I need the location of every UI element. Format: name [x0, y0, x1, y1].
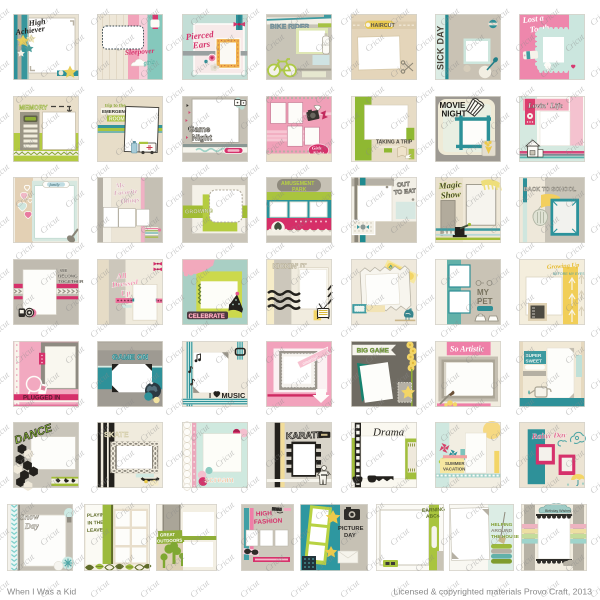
- svg-text:Cricut: Cricut: [563, 0, 587, 2]
- svg-text:I: I: [209, 391, 211, 400]
- svg-text:Lovin' Life: Lovin' Life: [527, 101, 563, 110]
- svg-text:ROOM: ROOM: [109, 117, 125, 123]
- svg-text:Cricut: Cricut: [0, 265, 12, 287]
- svg-text:Cricut: Cricut: [0, 161, 12, 183]
- svg-text:Cricut: Cricut: [288, 577, 312, 599]
- svg-text:Cricut: Cricut: [238, 577, 262, 599]
- svg-text:Cricut: Cricut: [513, 0, 537, 2]
- svg-text:Cricut: Cricut: [588, 317, 600, 339]
- svg-text:Cricut: Cricut: [213, 499, 237, 521]
- svg-text:Cricut: Cricut: [588, 473, 600, 495]
- svg-text:Cricut: Cricut: [138, 577, 162, 599]
- svg-text:Cricut: Cricut: [588, 265, 600, 287]
- svg-text:Cricut: Cricut: [0, 109, 12, 131]
- svg-text:PARK: PARK: [292, 187, 307, 193]
- svg-text:Cricut: Cricut: [313, 0, 337, 2]
- svg-text:CELEBRATE: CELEBRATE: [189, 314, 225, 320]
- svg-text:Cricut: Cricut: [63, 499, 87, 521]
- svg-text:Cricut: Cricut: [413, 83, 437, 105]
- svg-text:Day: Day: [24, 521, 40, 531]
- svg-text:Cricut: Cricut: [0, 213, 12, 235]
- svg-text:TOGETHER: TOGETHER: [58, 279, 84, 284]
- svg-text:Cricut: Cricut: [0, 421, 12, 443]
- svg-text:BELONG: BELONG: [58, 274, 78, 279]
- svg-text:trip to the: trip to the: [105, 103, 126, 108]
- svg-text:Ears: Ears: [191, 39, 211, 51]
- svg-text:Cricut: Cricut: [338, 577, 362, 599]
- svg-text:Licensed & copyrighted materia: Licensed & copyrighted materials Provo C…: [394, 587, 593, 597]
- svg-text:Cricut: Cricut: [363, 0, 387, 2]
- svg-text:Cricut: Cricut: [0, 473, 12, 495]
- svg-text:Cricut: Cricut: [113, 0, 137, 2]
- svg-text:Cricut: Cricut: [0, 57, 12, 79]
- svg-text:When I Was a Kid: When I Was a Kid: [7, 587, 76, 597]
- svg-text:Cricut: Cricut: [588, 525, 600, 547]
- svg-text:family: family: [50, 182, 60, 187]
- svg-text:Cricut: Cricut: [0, 5, 12, 27]
- svg-text:Cricut: Cricut: [263, 0, 287, 2]
- svg-text:Cricut: Cricut: [463, 0, 487, 2]
- svg-text:OUTDOORS: OUTDOORS: [157, 538, 183, 544]
- svg-text:Cricut: Cricut: [88, 577, 112, 599]
- svg-text:Show: Show: [440, 189, 461, 201]
- svg-text:Cricut: Cricut: [163, 0, 187, 2]
- svg-text:IN THE: IN THE: [87, 520, 104, 527]
- svg-text:MEMORY: MEMORY: [19, 105, 48, 112]
- svg-text:SWEET: SWEET: [526, 359, 543, 364]
- svg-text:Cricut: Cricut: [588, 161, 600, 183]
- svg-text:Cricut: Cricut: [413, 0, 437, 2]
- svg-text:Cricut: Cricut: [0, 369, 12, 391]
- svg-text:Cricut: Cricut: [63, 0, 87, 2]
- svg-text:Cricut: Cricut: [588, 5, 600, 27]
- svg-text:VACATION: VACATION: [443, 467, 465, 472]
- svg-text:Night: Night: [192, 134, 212, 143]
- svg-text:Cricut: Cricut: [588, 57, 600, 79]
- svg-text:Cricut: Cricut: [213, 0, 237, 2]
- svg-text:Cricut: Cricut: [588, 109, 600, 131]
- svg-text:Cricut: Cricut: [13, 0, 37, 2]
- svg-text:Cricut: Cricut: [188, 577, 212, 599]
- svg-text:Cricut: Cricut: [0, 317, 12, 339]
- svg-text:Cricut: Cricut: [238, 5, 262, 27]
- svg-text:Cricut: Cricut: [238, 161, 262, 183]
- svg-text:Cricut: Cricut: [588, 369, 600, 391]
- svg-text:Cricut: Cricut: [588, 421, 600, 443]
- svg-text:WE: WE: [60, 268, 67, 273]
- svg-text:SICK DAY: SICK DAY: [436, 25, 446, 70]
- svg-text:GROWING: GROWING: [185, 209, 213, 216]
- svg-text:Cricut: Cricut: [588, 213, 600, 235]
